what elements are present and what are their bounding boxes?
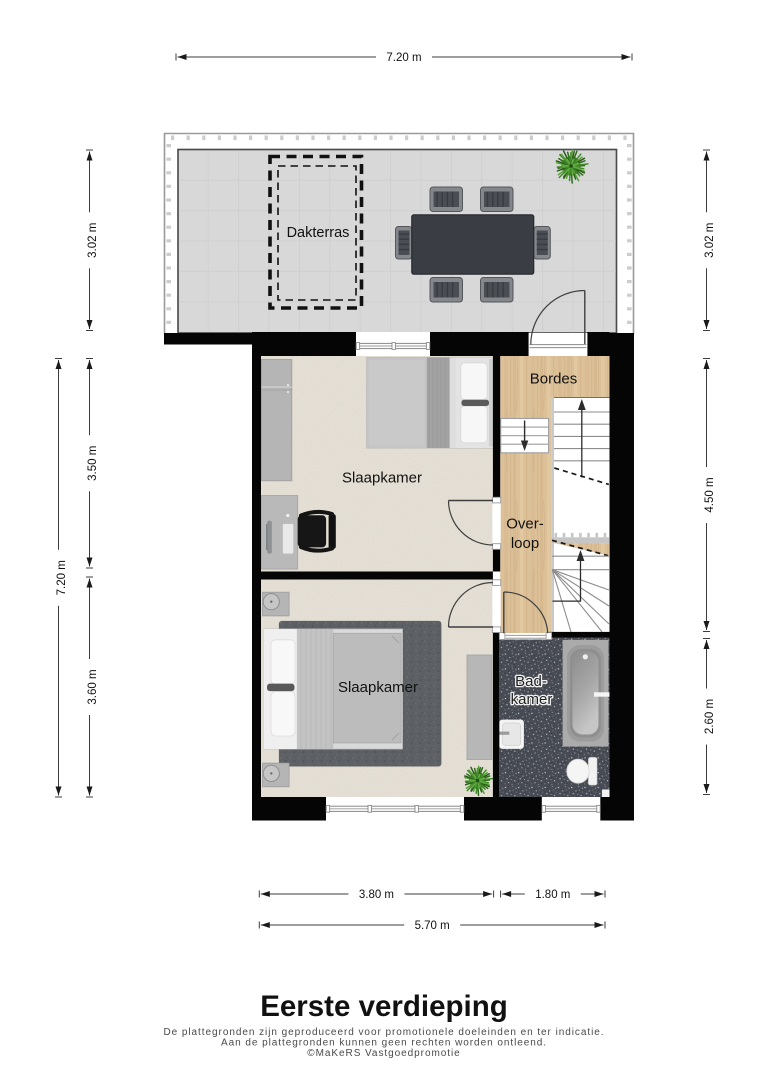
svg-text:Over-: Over- bbox=[506, 516, 544, 533]
svg-text:De plattegronden zijn geproduc: De plattegronden zijn geproduceerd voor … bbox=[163, 1027, 604, 1038]
svg-text:Aan de plattegronden kunnen ge: Aan de plattegronden kunnen geen rechten… bbox=[221, 1038, 547, 1049]
svg-text:3.60 m: 3.60 m bbox=[87, 669, 99, 704]
svg-text:3.50 m: 3.50 m bbox=[87, 446, 99, 481]
svg-text:©MaKeRS Vastgoedpromotie: ©MaKeRS Vastgoedpromotie bbox=[307, 1048, 460, 1059]
svg-text:4.50 m: 4.50 m bbox=[704, 477, 716, 512]
svg-text:Slaapkamer: Slaapkamer bbox=[342, 470, 422, 487]
svg-text:kamer: kamer bbox=[511, 691, 553, 708]
svg-text:Bordes: Bordes bbox=[530, 371, 578, 388]
svg-text:7.20 m: 7.20 m bbox=[386, 52, 421, 64]
svg-text:3.02 m: 3.02 m bbox=[87, 223, 99, 258]
svg-text:3.02 m: 3.02 m bbox=[704, 223, 716, 258]
svg-text:loop: loop bbox=[511, 535, 539, 552]
svg-text:Bad-: Bad- bbox=[515, 673, 547, 690]
svg-text:Slaapkamer: Slaapkamer bbox=[338, 679, 418, 696]
svg-text:7.20 m: 7.20 m bbox=[56, 560, 68, 595]
svg-text:3.80 m: 3.80 m bbox=[359, 889, 394, 901]
svg-text:2.60 m: 2.60 m bbox=[704, 699, 716, 734]
svg-text:5.70 m: 5.70 m bbox=[415, 920, 450, 932]
svg-text:Dakterras: Dakterras bbox=[287, 225, 350, 241]
svg-text:1.80 m: 1.80 m bbox=[535, 889, 570, 901]
svg-text:Eerste verdieping: Eerste verdieping bbox=[260, 990, 508, 1023]
